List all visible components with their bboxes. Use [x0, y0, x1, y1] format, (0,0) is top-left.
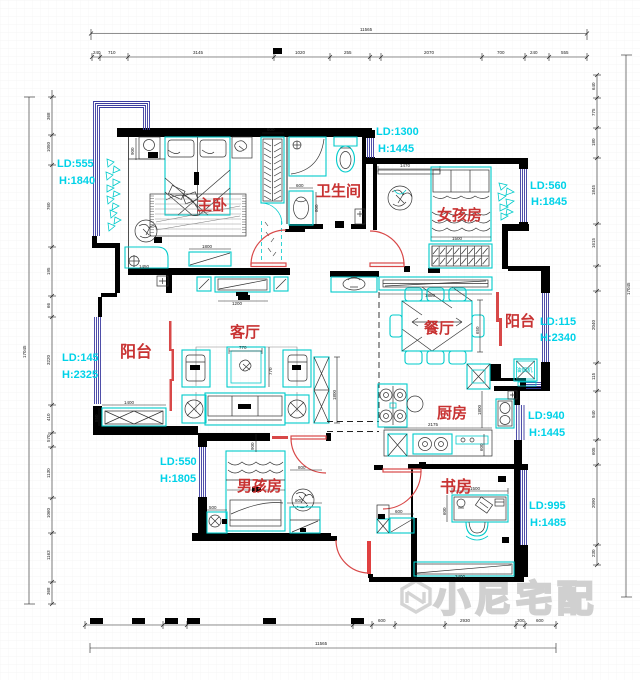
- svg-text:940: 940: [591, 410, 596, 418]
- svg-text:800: 800: [295, 498, 303, 503]
- svg-text:主卧: 主卧: [197, 196, 227, 214]
- svg-text:11565: 11565: [360, 27, 373, 32]
- svg-text:1200: 1200: [232, 301, 243, 306]
- svg-text:555: 555: [561, 50, 569, 55]
- svg-text:LD:995: LD:995: [529, 500, 566, 512]
- svg-text:775: 775: [591, 108, 596, 116]
- svg-text:餐厅: 餐厅: [424, 319, 454, 337]
- svg-text:605: 605: [591, 447, 596, 455]
- svg-text:640: 640: [591, 82, 596, 90]
- svg-text:195: 195: [46, 267, 51, 275]
- svg-text:368: 368: [46, 587, 51, 595]
- svg-text:2175: 2175: [428, 422, 439, 427]
- svg-text:240: 240: [93, 50, 101, 55]
- svg-text:240: 240: [530, 50, 538, 55]
- svg-text:男孩房: 男孩房: [237, 477, 282, 495]
- svg-text:阳台: 阳台: [120, 342, 152, 361]
- svg-text:770: 770: [268, 367, 273, 375]
- svg-text:368: 368: [46, 112, 51, 120]
- svg-text:300: 300: [517, 618, 525, 623]
- svg-text:卫生间: 卫生间: [316, 182, 361, 200]
- svg-text:LD:115: LD:115: [540, 316, 576, 328]
- svg-text:H:1445: H:1445: [529, 427, 565, 439]
- svg-text:女孩房: 女孩房: [437, 206, 482, 224]
- svg-text:1615: 1615: [591, 237, 596, 248]
- svg-text:1470: 1470: [400, 163, 411, 168]
- svg-text:600: 600: [395, 509, 403, 514]
- svg-text:1800: 1800: [202, 244, 213, 249]
- svg-text:LD:940: LD:940: [528, 410, 565, 422]
- svg-text:H:1805: H:1805: [160, 473, 196, 485]
- svg-text:66: 66: [46, 302, 51, 308]
- svg-text:1020: 1020: [295, 50, 306, 55]
- svg-text:600: 600: [296, 183, 304, 188]
- svg-text:3145: 3145: [193, 50, 204, 55]
- svg-text:550: 550: [94, 414, 99, 422]
- svg-text:800: 800: [314, 204, 319, 212]
- svg-text:1060: 1060: [46, 507, 51, 518]
- svg-text:600: 600: [267, 127, 275, 132]
- svg-text:1800: 1800: [477, 404, 482, 415]
- svg-text:1845: 1845: [591, 184, 596, 195]
- svg-text:阳台: 阳台: [505, 312, 535, 330]
- svg-text:小尼宅配: 小尼宅配: [434, 578, 598, 619]
- svg-text:H:2325: H:2325: [62, 369, 98, 381]
- svg-text:800: 800: [298, 465, 306, 470]
- svg-text:油烟机: 油烟机: [516, 366, 533, 374]
- svg-text:2930: 2930: [460, 618, 471, 623]
- svg-text:1130: 1130: [46, 468, 51, 478]
- svg-text:600: 600: [536, 618, 544, 623]
- svg-text:2400: 2400: [455, 574, 466, 579]
- svg-text:书房: 书房: [440, 477, 472, 496]
- svg-text:1050: 1050: [46, 141, 51, 152]
- svg-text:H:1840: H:1840: [59, 175, 95, 187]
- svg-text:3220: 3220: [46, 354, 51, 365]
- svg-text:LD:550: LD:550: [160, 456, 197, 468]
- svg-text:230: 230: [591, 549, 596, 557]
- svg-text:255: 255: [344, 50, 352, 55]
- svg-text:客厅: 客厅: [229, 323, 260, 341]
- svg-text:900: 900: [250, 442, 255, 450]
- svg-text:710: 710: [108, 50, 116, 55]
- svg-text:LD:560: LD:560: [530, 180, 567, 192]
- svg-text:1500: 1500: [452, 236, 463, 241]
- svg-text:LD:555: LD:555: [57, 158, 94, 170]
- svg-text:LD:1300: LD:1300: [376, 126, 419, 138]
- svg-text:115: 115: [591, 372, 596, 380]
- svg-text:LD:145: LD:145: [62, 352, 99, 364]
- svg-text:600: 600: [442, 507, 447, 515]
- svg-text:厨房: 厨房: [437, 404, 467, 422]
- svg-text:2040: 2040: [591, 319, 596, 330]
- svg-text:H:1445: H:1445: [378, 143, 414, 155]
- svg-text:500: 500: [209, 505, 217, 510]
- svg-text:650: 650: [475, 326, 480, 334]
- svg-text:1450: 1450: [139, 264, 150, 269]
- svg-text:770: 770: [239, 345, 247, 350]
- svg-text:180: 180: [591, 138, 596, 146]
- svg-text:H:1845: H:1845: [531, 196, 567, 208]
- svg-text:17045: 17045: [626, 282, 631, 295]
- svg-text:760: 760: [46, 202, 51, 210]
- svg-text:2070: 2070: [424, 50, 435, 55]
- svg-text:11565: 11565: [315, 641, 328, 646]
- svg-text:H:2340: H:2340: [540, 332, 576, 344]
- svg-text:570: 570: [46, 434, 51, 442]
- svg-text:700: 700: [497, 50, 505, 55]
- svg-text:600: 600: [479, 443, 484, 451]
- svg-text:1400: 1400: [124, 400, 135, 405]
- svg-text:410: 410: [46, 413, 51, 421]
- svg-text:1163: 1163: [46, 550, 51, 560]
- svg-text:H:1485: H:1485: [530, 517, 566, 529]
- svg-text:2090: 2090: [591, 497, 596, 508]
- svg-text:600: 600: [378, 618, 386, 623]
- svg-text:1800: 1800: [332, 389, 337, 400]
- svg-text:17045: 17045: [22, 345, 27, 358]
- svg-text:900: 900: [130, 147, 135, 155]
